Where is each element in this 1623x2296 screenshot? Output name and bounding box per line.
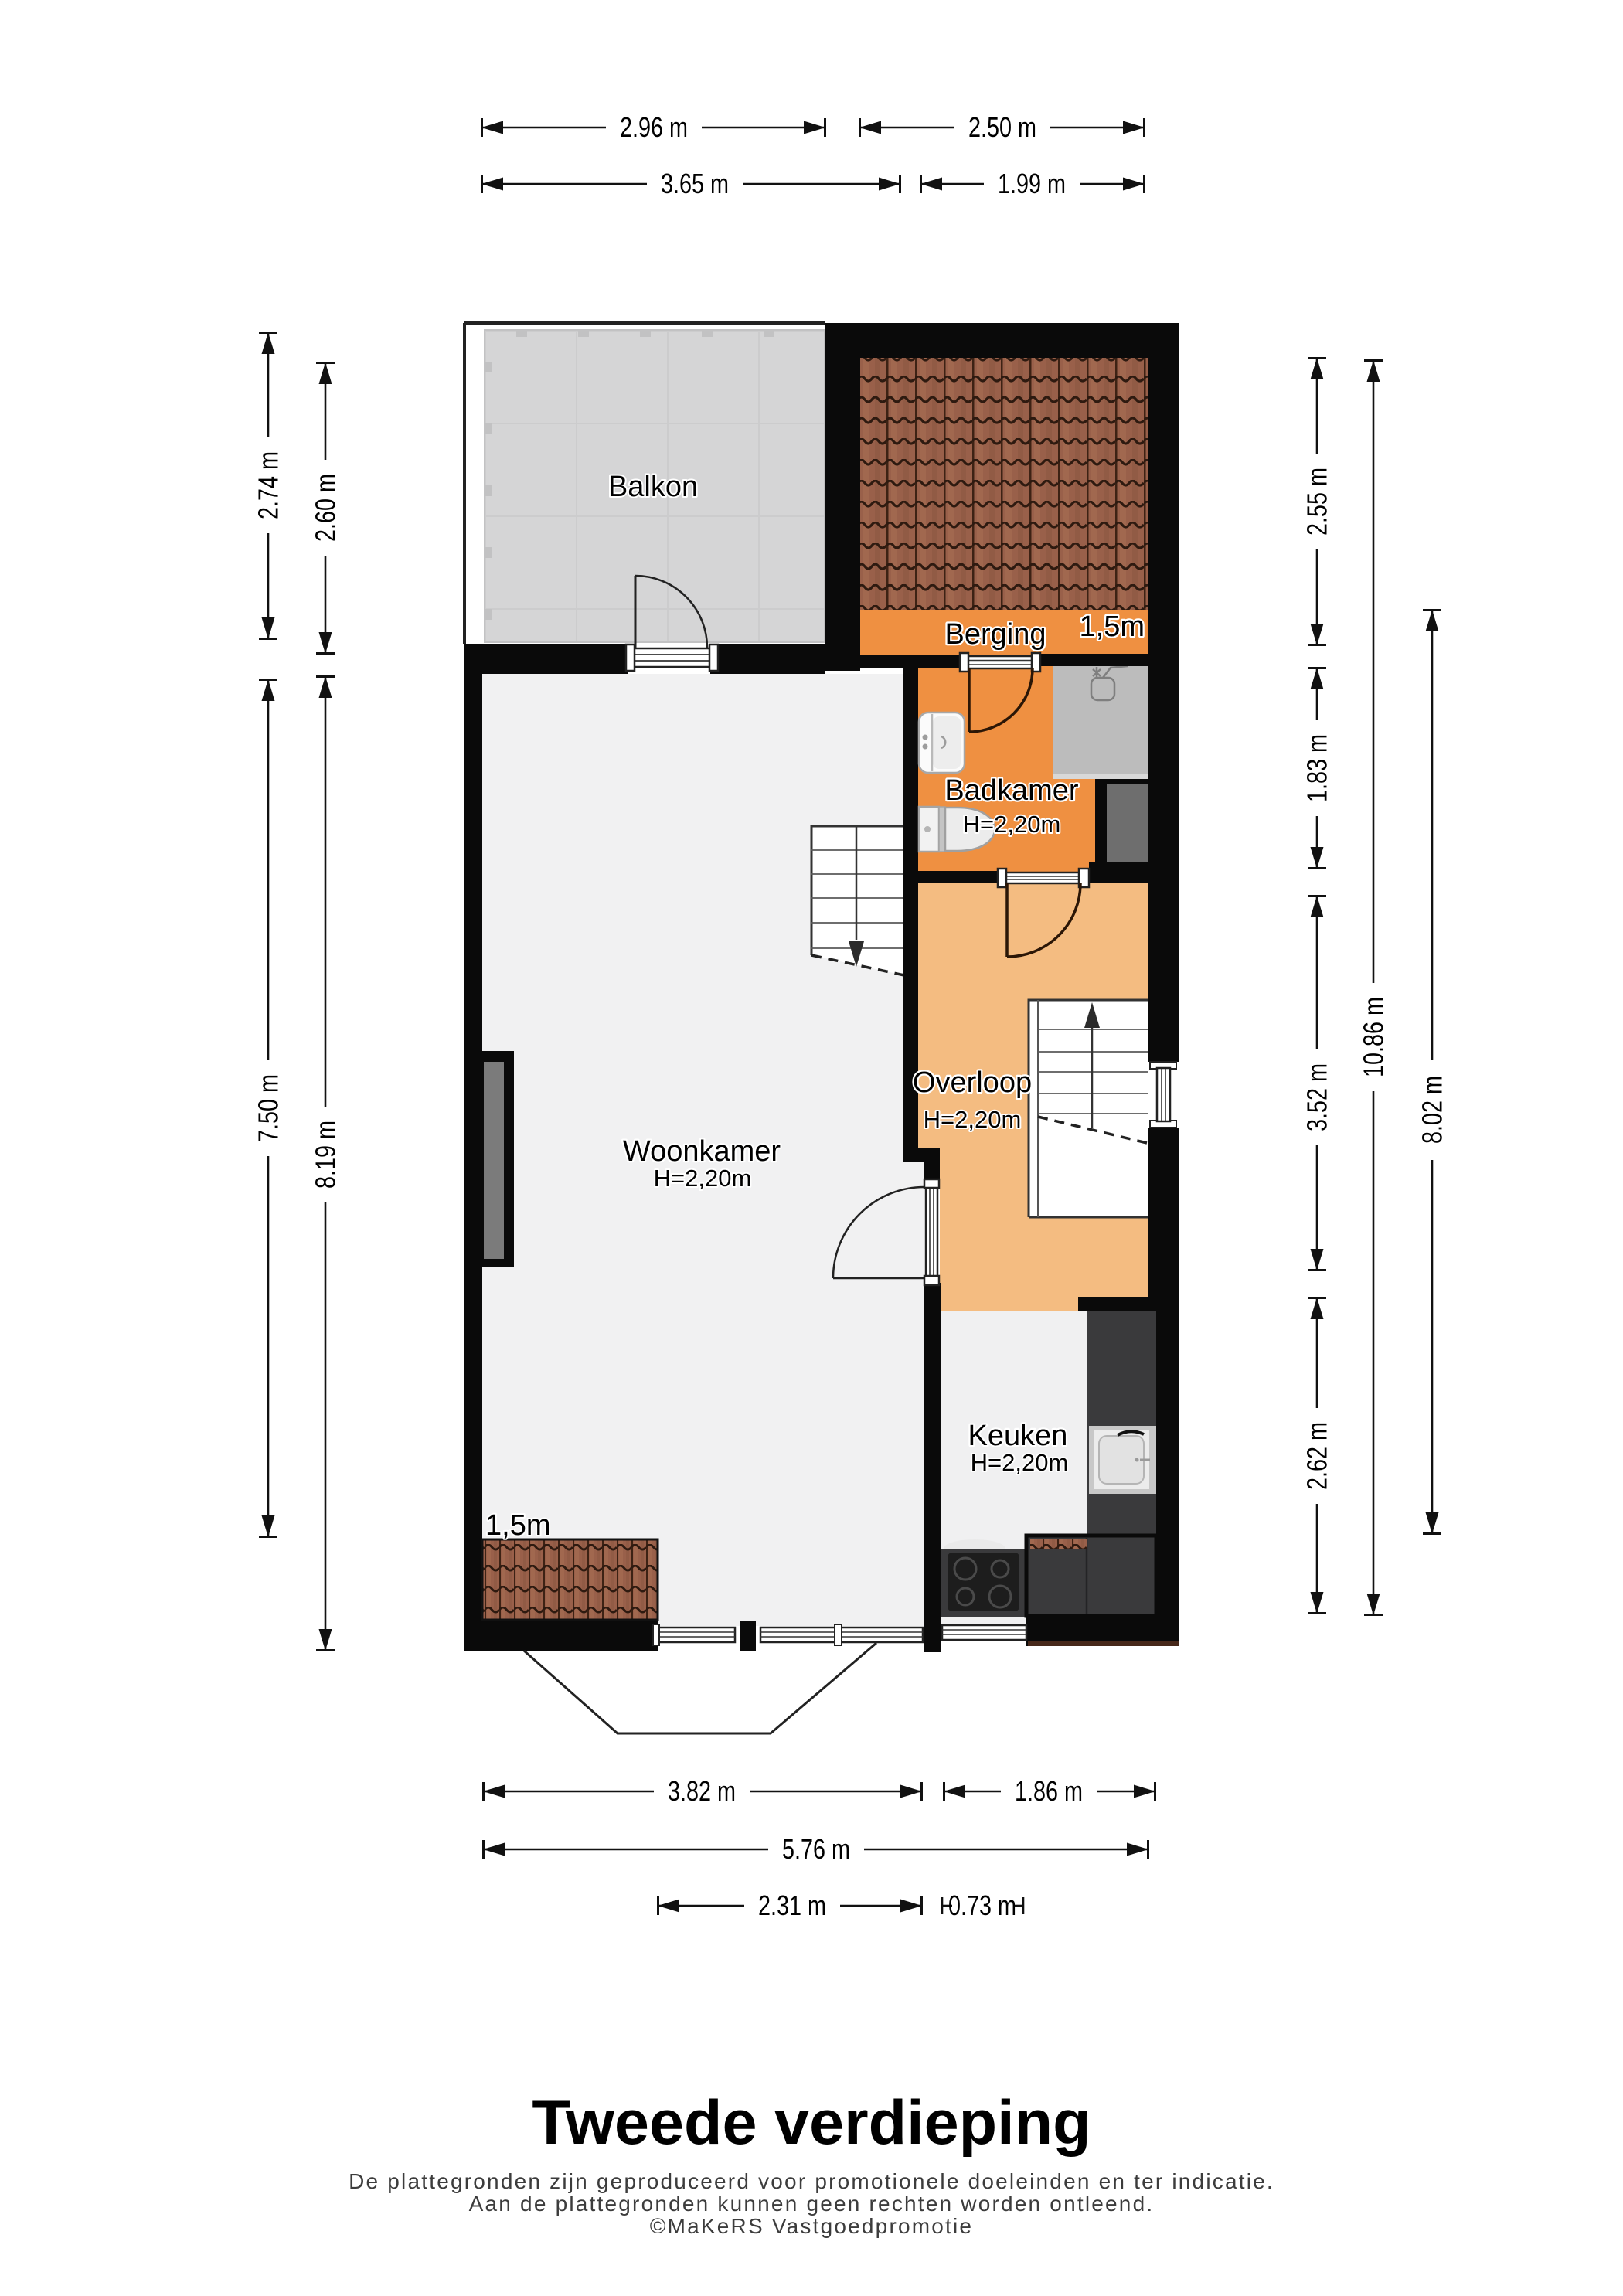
svg-text:Keuken: Keuken bbox=[968, 1420, 1068, 1452]
svg-text:2.74 m: 2.74 m bbox=[253, 451, 284, 519]
svg-text:Tweede verdieping: Tweede verdieping bbox=[532, 2088, 1091, 2158]
svg-text:Berging: Berging bbox=[945, 618, 1046, 651]
svg-text:©MaKeRS Vastgoedpromotie: ©MaKeRS Vastgoedpromotie bbox=[650, 2214, 973, 2238]
svg-text:0.73 m: 0.73 m bbox=[948, 1890, 1016, 1921]
svg-text:Overloop: Overloop bbox=[913, 1066, 1032, 1099]
svg-text:8.02 m: 8.02 m bbox=[1417, 1076, 1448, 1144]
svg-text:3.82 m: 3.82 m bbox=[668, 1775, 736, 1807]
svg-text:Badkamer: Badkamer bbox=[944, 774, 1079, 807]
svg-text:H=2,20m: H=2,20m bbox=[654, 1165, 752, 1192]
svg-text:2.60 m: 2.60 m bbox=[310, 474, 342, 542]
svg-text:2.62 m: 2.62 m bbox=[1301, 1422, 1333, 1490]
svg-text:7.50 m: 7.50 m bbox=[253, 1074, 284, 1142]
svg-text:H=2,20m: H=2,20m bbox=[963, 811, 1061, 838]
svg-text:1,5m: 1,5m bbox=[1080, 611, 1145, 643]
svg-text:3.52 m: 3.52 m bbox=[1301, 1063, 1333, 1131]
svg-text:Woonkamer: Woonkamer bbox=[623, 1135, 781, 1168]
svg-text:1,5m: 1,5m bbox=[485, 1509, 550, 1542]
svg-text:3.65 m: 3.65 m bbox=[661, 168, 729, 199]
svg-text:H=2,20m: H=2,20m bbox=[924, 1106, 1022, 1133]
svg-text:1.99 m: 1.99 m bbox=[998, 168, 1066, 199]
svg-text:2.96 m: 2.96 m bbox=[620, 111, 688, 143]
svg-text:Balkon: Balkon bbox=[608, 471, 698, 503]
svg-text:2.31 m: 2.31 m bbox=[758, 1890, 826, 1921]
svg-text:H=2,20m: H=2,20m bbox=[971, 1449, 1069, 1476]
svg-text:Aan de plattegronden kunnen ge: Aan de plattegronden kunnen geen rechten… bbox=[469, 2192, 1155, 2216]
svg-text:2.55 m: 2.55 m bbox=[1301, 468, 1333, 536]
svg-text:2.50 m: 2.50 m bbox=[968, 111, 1036, 143]
svg-text:8.19 m: 8.19 m bbox=[310, 1121, 342, 1189]
svg-text:1.83 m: 1.83 m bbox=[1301, 734, 1333, 802]
svg-text:De plattegronden zijn geproduc: De plattegronden zijn geproduceerd voor … bbox=[349, 2169, 1274, 2193]
svg-text:1.86 m: 1.86 m bbox=[1015, 1775, 1083, 1807]
svg-text:5.76 m: 5.76 m bbox=[782, 1833, 850, 1865]
svg-text:10.86 m: 10.86 m bbox=[1358, 997, 1390, 1077]
